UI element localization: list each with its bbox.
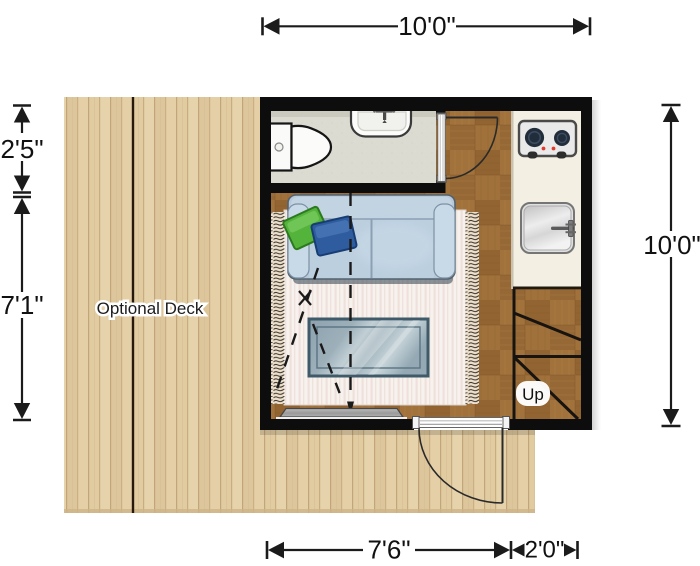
svg-text:2'5": 2'5" (0, 134, 43, 164)
svg-text:7'6": 7'6" (367, 535, 410, 565)
svg-text:2'0": 2'0" (525, 537, 565, 564)
svg-text:Up: Up (522, 385, 544, 404)
svg-text:7'1": 7'1" (0, 290, 43, 320)
svg-text:10'0": 10'0" (398, 11, 456, 41)
svg-text:10'0": 10'0" (643, 230, 700, 260)
svg-text:Optional Deck: Optional Deck (97, 299, 204, 318)
